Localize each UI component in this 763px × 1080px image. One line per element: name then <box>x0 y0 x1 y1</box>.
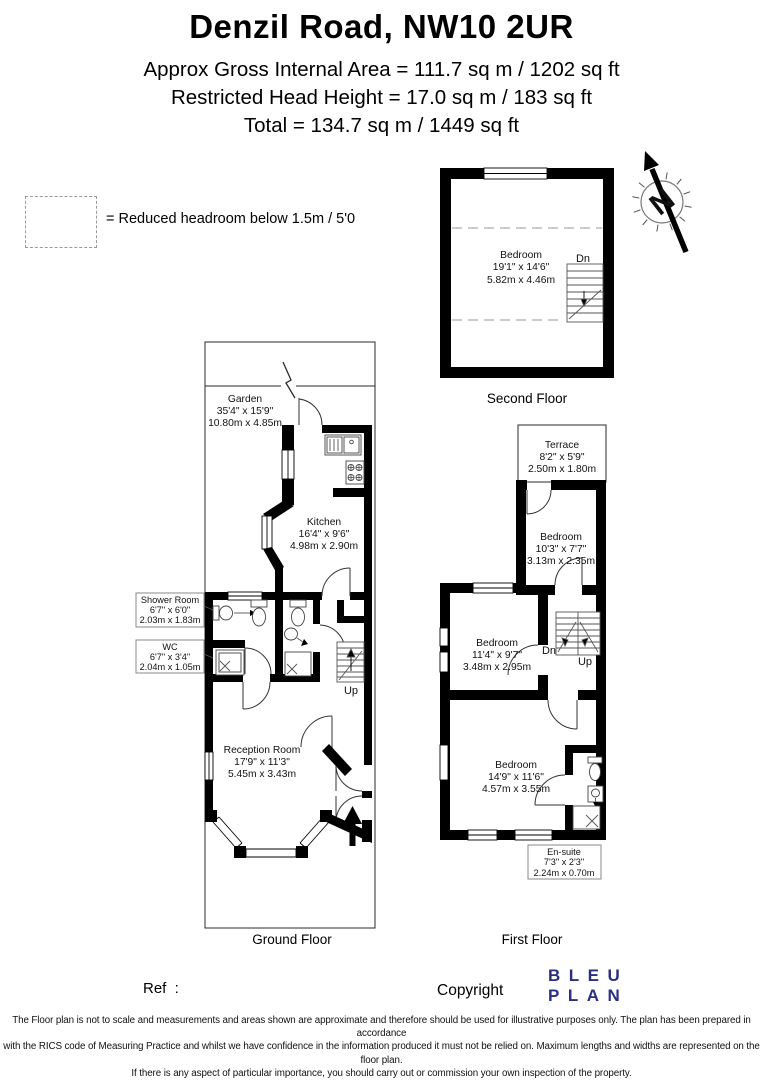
compass-icon: N <box>618 143 718 263</box>
copyright-label: Copyright <box>437 982 503 1000</box>
logo-line-2: PLAN <box>548 986 628 1006</box>
svg-text:6'7" x 3'4": 6'7" x 3'4" <box>150 652 190 662</box>
disclaimer-line: with the RICS code of Measuring Practice… <box>0 1040 763 1066</box>
svg-text:Bedroom: Bedroom <box>500 250 542 261</box>
wall-recess-1 <box>440 628 448 646</box>
logo-line-1: BLEU <box>548 966 628 986</box>
kitchen-bay-window-1 <box>282 450 294 479</box>
bottom-bedroom-door <box>548 700 577 729</box>
second-floor-caption: Second Floor <box>457 391 597 406</box>
svg-text:En-suite: En-suite <box>547 847 581 857</box>
first-floor-dn-label: Dn <box>542 645 556 657</box>
svg-text:Bedroom: Bedroom <box>476 638 518 649</box>
first-floor-up-label: Up <box>578 656 592 668</box>
svg-text:11'4" x 9'7": 11'4" x 9'7" <box>472 650 522 661</box>
shower-room-label-box: Shower Room 6'7" x 6'0" 2.03m x 1.83m <box>136 593 213 627</box>
wc-shower-tray-icon <box>285 652 311 676</box>
ensuite-label-box: En-suite 7'3" x 2'3" 2.24m x 0.70m <box>528 845 601 879</box>
garden-door <box>299 398 322 425</box>
total-area-line: Total = 134.7 sq m / 1449 sq ft <box>0 114 763 138</box>
bathroom-window <box>228 592 262 600</box>
svg-text:14'9" x 11'6": 14'9" x 11'6" <box>488 772 544 783</box>
svg-text:4.57m x 3.55m: 4.57m x 3.55m <box>482 784 550 795</box>
kitchen-bay-window-2 <box>262 516 272 549</box>
ref-label: Ref : <box>143 980 179 997</box>
wall-recess-2 <box>440 652 448 672</box>
svg-text:Shower Room: Shower Room <box>141 595 200 605</box>
svg-text:WC: WC <box>162 642 178 652</box>
ensuite-toilet-icon <box>588 757 602 781</box>
svg-text:8'2" x 5'9": 8'2" x 5'9" <box>539 452 584 463</box>
shower-room-door <box>245 648 271 674</box>
ground-floor-plan: Up Gard <box>130 335 390 960</box>
mid-bedroom-label: Bedroom 11'4" x 9'7" 3.48m x 2.95m <box>463 638 531 673</box>
ground-floor-stairs <box>337 642 364 682</box>
svg-text:3.48m x 2.95m: 3.48m x 2.95m <box>463 662 531 673</box>
svg-text:10'3" x 7'7": 10'3" x 7'7" <box>536 544 587 555</box>
svg-text:16'4" x 9'6": 16'4" x 9'6" <box>299 529 350 540</box>
first-floor-caption: First Floor <box>462 932 602 947</box>
reception-door <box>301 716 332 748</box>
first-floor-top-window <box>473 583 513 593</box>
svg-text:Reception Room: Reception Room <box>224 745 301 756</box>
kitchen-sink-icon <box>325 435 361 455</box>
second-floor-plan: Dn Bedroom 19'1" x 14'6" 5.82m x 4.46m <box>425 158 630 393</box>
ground-floor-caption: Ground Floor <box>212 932 372 947</box>
svg-text:5.45m x 3.43m: 5.45m x 3.43m <box>228 769 296 780</box>
garden-boundary <box>205 362 375 398</box>
wc-toilet-icon <box>290 600 306 626</box>
ground-floor-up-label: Up <box>344 685 358 697</box>
shower-tray-icon <box>216 650 244 675</box>
disclaimer-line: If there is any aspect of particular imp… <box>0 1067 763 1080</box>
reduced-headroom-swatch <box>25 196 97 248</box>
first-floor-stairs <box>556 612 600 655</box>
svg-text:Garden: Garden <box>228 394 263 405</box>
shower-room-sink-icon <box>213 606 256 620</box>
bottom-bedroom-label: Bedroom 14'9" x 11'6" 4.57m x 3.55m <box>482 760 550 795</box>
svg-text:2.04m x 1.05m: 2.04m x 1.05m <box>140 662 201 672</box>
first-floor-bottom-window-1 <box>468 830 497 840</box>
upper-bedroom-label: Bedroom 10'3" x 7'7" 3.13m x 2.35m <box>527 532 595 567</box>
svg-text:2.03m x 1.83m: 2.03m x 1.83m <box>140 615 201 625</box>
svg-text:6'7" x 6'0": 6'7" x 6'0" <box>150 605 190 615</box>
north-arrow-head <box>644 151 659 171</box>
ensuite-shower-tray-icon <box>573 806 600 829</box>
gross-area-line: Approx Gross Internal Area = 111.7 sq m … <box>0 58 763 82</box>
first-floor-bottom-window-2 <box>515 830 552 840</box>
terrace-label: Terrace 8'2" x 5'9" 2.50m x 1.80m <box>528 440 596 475</box>
svg-text:2.24m x 0.70m: 2.24m x 0.70m <box>534 868 595 878</box>
svg-text:3.13m x 2.35m: 3.13m x 2.35m <box>527 556 595 567</box>
hall-door <box>243 682 270 709</box>
svg-text:Terrace: Terrace <box>545 440 580 451</box>
bleuplan-logo: BLEU PLAN <box>548 966 628 1006</box>
wall-recess-3 <box>440 745 448 780</box>
reception-label: Reception Room 17'9" x 11'3" 5.45m x 3.4… <box>224 745 301 780</box>
second-floor-bedroom-label: Bedroom 19'1" x 14'6" 5.82m x 4.46m <box>487 250 555 286</box>
first-floor-plan: Dn Up Terrace 8'2" x 5'9" 2.50m x 1.80m … <box>425 418 625 888</box>
second-floor-stairs <box>567 264 603 322</box>
break-line-icon <box>283 362 295 398</box>
svg-text:17'9" x 11'3": 17'9" x 11'3" <box>234 757 290 768</box>
reception-side-window <box>205 752 213 780</box>
svg-text:19'1" x 14'6": 19'1" x 14'6" <box>493 262 550 273</box>
disclaimer-line: The Floor plan is not to scale and measu… <box>0 1014 763 1040</box>
floorplan-page: Denzil Road, NW10 2UR Approx Gross Inter… <box>0 0 763 1080</box>
garden-label: Garden 35'4" x 15'9" 10.80m x 4.85m <box>208 394 282 429</box>
second-floor-dn-label: Dn <box>576 253 590 265</box>
page-title: Denzil Road, NW10 2UR <box>0 8 763 46</box>
kitchen-label: Kitchen 16'4" x 9'6" 4.98m x 2.90m <box>290 517 358 552</box>
svg-text:10.80m x 4.85m: 10.80m x 4.85m <box>208 418 282 429</box>
wc-sink-icon <box>285 628 309 646</box>
svg-text:7'3" x 2'3": 7'3" x 2'3" <box>544 857 584 867</box>
svg-text:Bedroom: Bedroom <box>540 532 582 543</box>
shower-room-toilet-icon <box>251 600 267 626</box>
svg-text:Bedroom: Bedroom <box>495 760 537 771</box>
terrace-door <box>527 490 551 514</box>
svg-text:35'4" x 15'9": 35'4" x 15'9" <box>217 406 274 417</box>
svg-text:4.98m x 2.90m: 4.98m x 2.90m <box>290 541 358 552</box>
svg-text:5.82m x 4.46m: 5.82m x 4.46m <box>487 275 555 286</box>
wc-label-box: WC 6'7" x 3'4" 2.04m x 1.05m <box>136 640 213 673</box>
disclaimer: The Floor plan is not to scale and measu… <box>0 1014 763 1080</box>
stove-icon <box>346 461 364 484</box>
head-height-line: Restricted Head Height = 17.0 sq m / 183… <box>0 86 763 110</box>
second-floor-window <box>484 168 547 179</box>
svg-text:2.50m x 1.80m: 2.50m x 1.80m <box>528 464 596 475</box>
legend-label: = Reduced headroom below 1.5m / 5'0 <box>106 211 355 227</box>
svg-text:Kitchen: Kitchen <box>307 517 342 528</box>
kitchen-door <box>322 568 350 596</box>
